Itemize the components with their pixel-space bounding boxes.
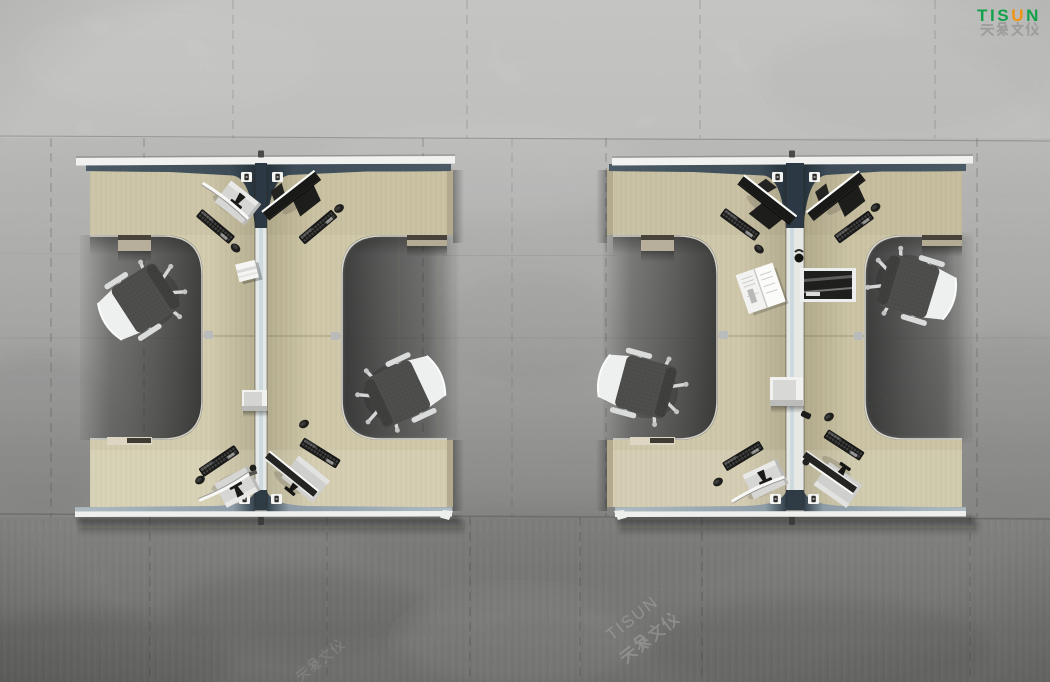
- svg-text:TISUN: TISUN: [977, 6, 1041, 25]
